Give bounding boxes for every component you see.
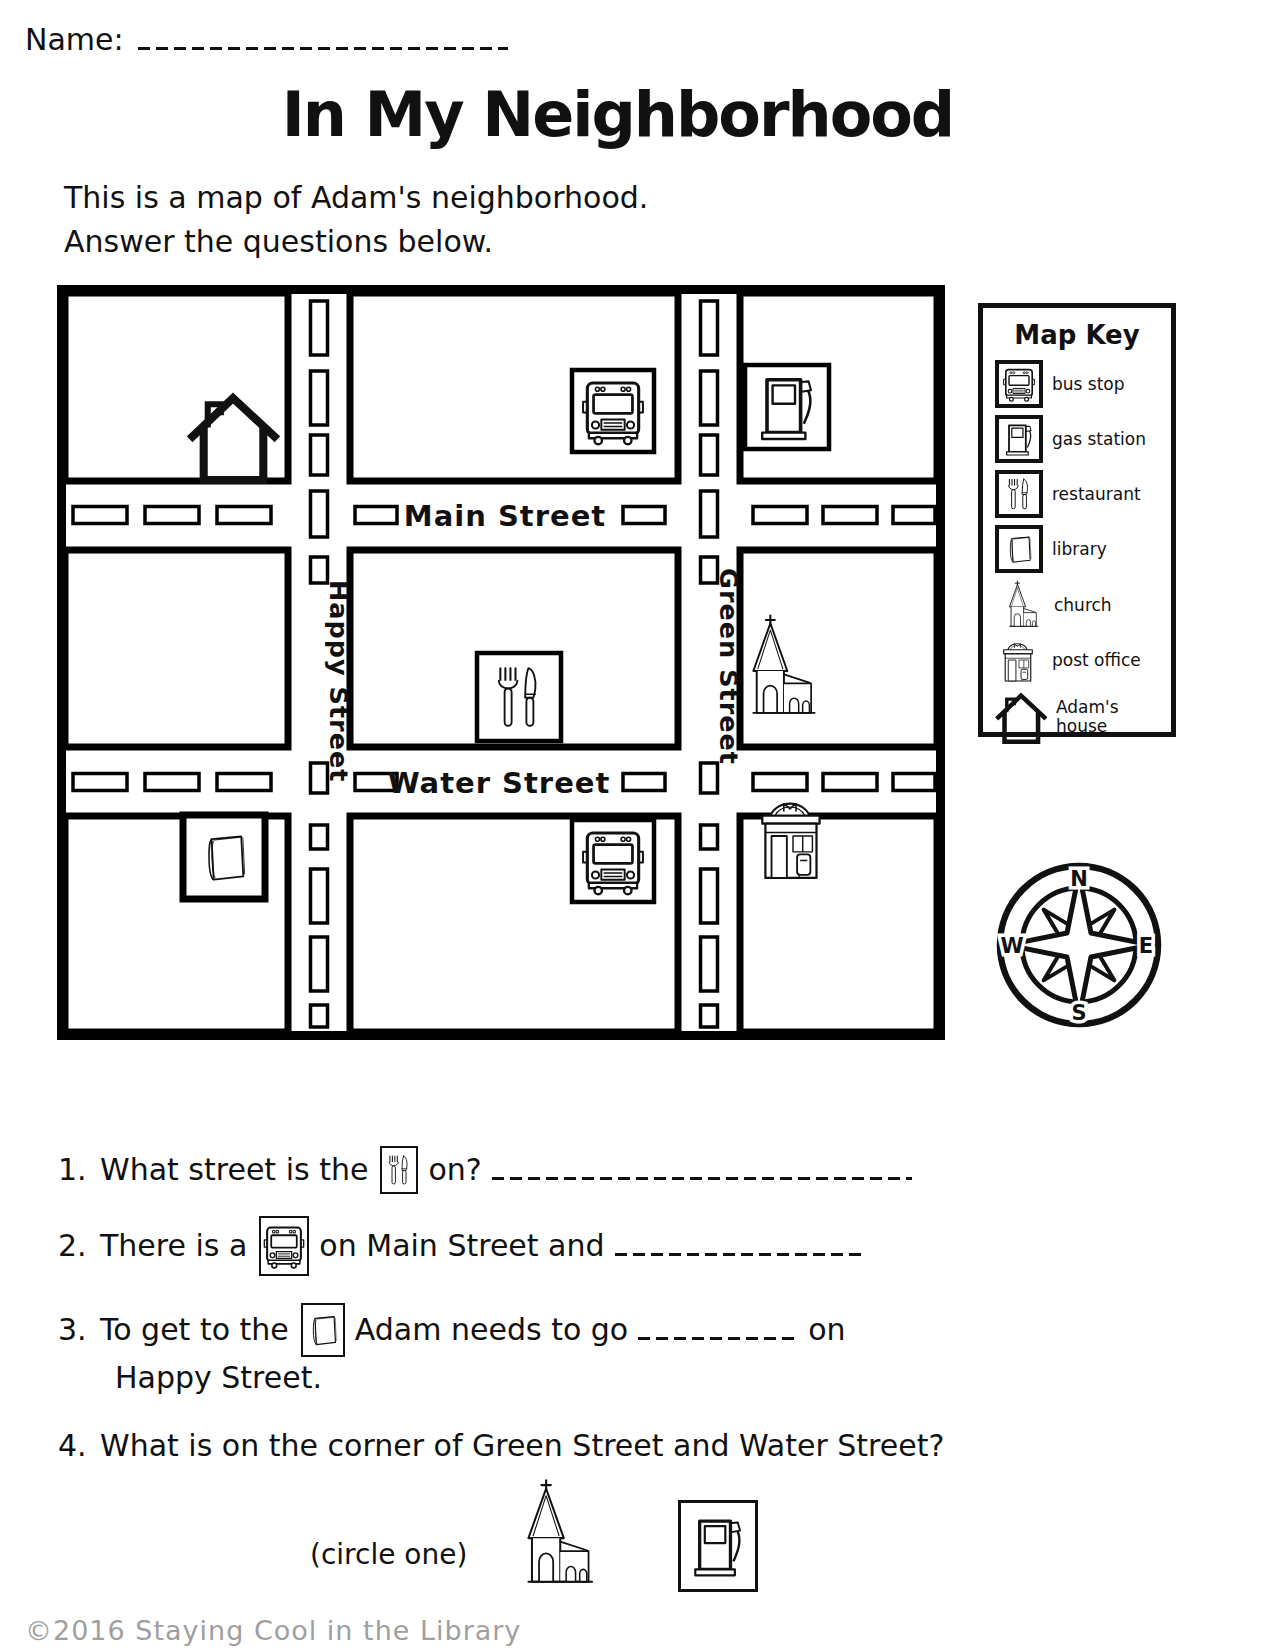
question-3-text-after: on — [808, 1312, 845, 1347]
post-office-icon — [995, 637, 1043, 683]
compass-s-label: S — [1071, 1001, 1086, 1025]
church-icon — [497, 1478, 607, 1590]
question-2-number: 2. — [58, 1228, 100, 1263]
key-label: bus stop — [1052, 375, 1125, 394]
key-entry-gas-station: gas station — [995, 415, 1171, 463]
question-1-number: 1. — [58, 1152, 100, 1187]
question-3-text-mid: Adam needs to go — [355, 1312, 628, 1347]
map-bus-stop-icon-water — [572, 820, 654, 902]
name-label: Name: — [25, 22, 124, 57]
answer-blank-1 — [492, 1153, 912, 1180]
bus-icon — [995, 360, 1043, 408]
circle-one-label: (circle one) — [310, 1538, 467, 1571]
church-icon — [995, 580, 1045, 630]
fork-knife-icon — [380, 1146, 418, 1194]
city-block — [65, 550, 288, 747]
key-entry-bus-stop: bus stop — [995, 360, 1171, 408]
question-3-text: To get to the — [100, 1312, 289, 1347]
map-library-icon — [183, 815, 265, 899]
street-label-happy: Happy Street — [324, 580, 354, 782]
compass-rose-icon: N E S W — [994, 860, 1164, 1030]
question-3: 3.To get to theAdam needs to goon — [58, 1312, 856, 1347]
question-4-text: What is on the corner of Green Street an… — [100, 1428, 944, 1463]
intro-line-1: This is a map of Adam's neighborhood. — [64, 176, 648, 220]
gas-pump-icon — [678, 1500, 758, 1592]
street-label-green: Green Street — [714, 568, 744, 765]
key-label: gas station — [1052, 430, 1146, 449]
question-1: 1.What street is theon? — [58, 1152, 912, 1187]
intro-text: This is a map of Adam's neighborhood. An… — [64, 176, 648, 264]
question-2: 2.There is aon Main Street and — [58, 1228, 865, 1266]
question-3-number: 3. — [58, 1312, 100, 1347]
question-2-text: There is a — [100, 1228, 247, 1263]
key-entry-library: library — [995, 525, 1171, 573]
compass-w-label: W — [1000, 934, 1023, 958]
city-block — [65, 293, 288, 481]
book-icon — [995, 525, 1043, 573]
answer-blank-3 — [638, 1313, 798, 1340]
fork-knife-icon — [995, 470, 1043, 518]
street-label-water: Water Street — [388, 766, 611, 800]
key-label: Adam's house — [1056, 698, 1138, 735]
question-4: 4.What is on the corner of Green Street … — [58, 1428, 954, 1463]
map-restaurant-icon — [477, 653, 561, 741]
name-blank-line — [138, 23, 508, 50]
page-title: In My Neighborhood — [0, 78, 1235, 151]
key-entry-church: church — [995, 580, 1171, 630]
street-label-main: Main Street — [404, 499, 606, 533]
name-row: Name: — [25, 22, 508, 57]
worksheet-page: { "page": { "name_label": "Name:", "titl… — [0, 0, 1275, 1650]
question-1-text: What street is the — [100, 1152, 368, 1187]
map-gas-station-icon — [745, 365, 829, 449]
map-key-title: Map Key — [983, 320, 1171, 350]
compass-n-label: N — [1070, 867, 1088, 891]
question-1-text-after: on? — [428, 1152, 481, 1187]
map-bus-stop-icon-main — [572, 370, 654, 452]
key-label: library — [1052, 540, 1107, 559]
key-label: church — [1054, 596, 1112, 615]
book-icon — [301, 1303, 345, 1357]
compass-e-label: E — [1139, 934, 1153, 958]
house-icon — [995, 690, 1047, 744]
copyright-footer: ©2016 Staying Cool in the Library — [25, 1615, 521, 1646]
question-3-line-2: Happy Street. — [115, 1360, 322, 1395]
key-entry-restaurant: restaurant — [995, 470, 1171, 518]
map-key: Map Key bus stop gas station restaurant … — [978, 303, 1176, 737]
intro-line-2: Answer the questions below. — [64, 220, 648, 264]
key-entry-adams-house: Adam's house — [995, 690, 1171, 744]
key-entry-post-office: post office — [995, 637, 1171, 683]
answer-blank-2 — [615, 1229, 865, 1256]
neighborhood-map: Main Street Water Street Happy Street Gr… — [57, 285, 945, 1040]
question-4-number: 4. — [58, 1428, 100, 1463]
question-2-text-after: on Main Street and — [319, 1228, 604, 1263]
key-label: restaurant — [1052, 485, 1141, 504]
gas-pump-icon — [995, 415, 1043, 463]
bus-icon — [259, 1216, 309, 1276]
key-label: post office — [1052, 651, 1141, 670]
map-post-office-icon — [762, 803, 819, 878]
